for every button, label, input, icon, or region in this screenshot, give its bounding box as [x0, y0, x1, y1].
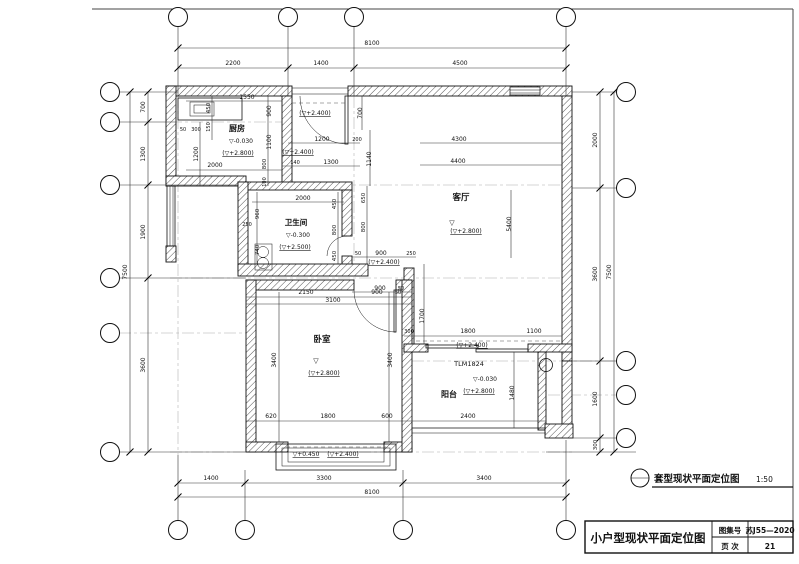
drawing-primitive: [617, 83, 636, 102]
wall-north-left: [166, 86, 292, 96]
wall-bedroom-south-left: [246, 442, 288, 452]
dim-label: ▽-0.300: [286, 232, 310, 239]
dim-label: 5400: [506, 216, 513, 231]
dim-label: 450: [332, 250, 338, 261]
dim-label: 2000: [592, 132, 599, 147]
dim-label: 900: [266, 105, 273, 117]
wall-east-lower: [562, 361, 572, 428]
drawing-primitive: [345, 96, 348, 144]
wall-east: [562, 96, 572, 361]
dim-label: (▽+2.800): [308, 370, 340, 377]
openings-and-fixtures: [167, 87, 560, 470]
dim-label: 1400: [313, 60, 328, 67]
wall-bath-north: [238, 182, 352, 190]
dim-label: 8100: [364, 489, 379, 496]
dim-label: 740: [255, 244, 261, 255]
drawing-primitive: [557, 8, 576, 27]
dim-label: 700: [140, 101, 147, 113]
dim-label: 1550: [239, 94, 254, 101]
drawing-title: 小户型现状平面定位图: [590, 531, 706, 545]
dim-label: 3400: [476, 475, 491, 482]
dim-label: (▽+2.800): [450, 228, 482, 235]
drawing-primitive: [557, 521, 576, 540]
dim-label: 1140: [366, 151, 373, 166]
dim-label: 1200: [314, 136, 329, 143]
window-west: [167, 186, 175, 246]
plan-caption: 套型现状平面定位图 1:50: [631, 469, 793, 487]
drawing-primitive: [167, 186, 175, 246]
dim-label: 800: [262, 158, 268, 169]
dim-label: 1600: [592, 391, 599, 406]
drawing-primitive: [101, 269, 120, 288]
wall-bath-east: [342, 190, 352, 236]
dim-label: 2400: [460, 413, 475, 420]
dim-label: 650: [361, 192, 367, 203]
dim-label: 7500: [606, 264, 613, 279]
dim-label: 700: [357, 107, 364, 119]
dim-label: 100: [262, 177, 268, 187]
drawing-primitive: [617, 429, 636, 448]
drawing-primitive: [354, 290, 396, 332]
dim-label: 300: [593, 439, 599, 450]
dim-label: 250: [406, 251, 416, 257]
dim-label: 1300: [140, 146, 147, 161]
dim-label: 3100: [325, 297, 340, 304]
dim-label: 2150: [298, 289, 313, 296]
dim-label: 900: [371, 289, 383, 296]
dim-label: 1900: [140, 224, 147, 239]
dim-label: 250: [242, 222, 252, 228]
room-label: 卫生间: [285, 217, 308, 227]
dim-label: 300: [191, 127, 201, 133]
window-north: [510, 87, 540, 95]
dim-label: 150: [206, 122, 212, 132]
dim-label: 1800: [320, 413, 335, 420]
page-value: 21: [765, 542, 775, 551]
dim-label: 300: [404, 329, 414, 335]
dim-label: 1480: [509, 385, 516, 400]
drawing-primitive: [169, 521, 188, 540]
drawing-primitive: [101, 443, 120, 462]
drawing-primitive: [101, 176, 120, 195]
dim-label: 8100: [364, 40, 379, 47]
dim-label: 200: [352, 137, 362, 143]
floor-plan-drawing: 8100220014004500140033003400810070013001…: [0, 0, 799, 564]
page-label: 页 次: [721, 541, 739, 551]
dim-label: 2000: [207, 162, 222, 169]
dim-label: 50: [395, 290, 401, 296]
dim-label: (▽+2.400): [299, 110, 331, 117]
dim-label: 50: [180, 127, 186, 133]
wall-kitchen-east: [282, 96, 292, 186]
drawing-primitive: [236, 521, 255, 540]
drawing-primitive: [101, 324, 120, 343]
dim-label: 2200: [225, 60, 240, 67]
room-label: ▽: [449, 219, 455, 227]
dim-label: 140: [290, 160, 300, 166]
dim-label: (▽+2.400): [282, 149, 314, 156]
dim-label: 800: [361, 221, 367, 232]
dim-label: 620: [265, 413, 277, 420]
dim-label: TLM1824: [453, 360, 484, 368]
dim-label: 4500: [452, 60, 467, 67]
room-label: 卧室: [313, 334, 331, 345]
dim-label: 1100: [526, 328, 541, 335]
dim-label: ▽-0.030: [473, 376, 497, 383]
drawing-primitive: [476, 349, 528, 352]
drawing-primitive: [617, 352, 636, 371]
wall-living-south-right: [528, 344, 572, 352]
dim-label: 450: [206, 102, 212, 113]
dim-label: (▽+2.400): [368, 259, 400, 266]
dim-label: 1400: [203, 475, 218, 482]
dim-label: 1100: [266, 134, 273, 149]
bedroom-door: [354, 290, 396, 332]
dim-label: 900: [375, 250, 387, 257]
dim-label: 1800: [460, 328, 475, 335]
wall-bedroom-east: [402, 280, 412, 452]
dim-label: 4400: [450, 158, 465, 165]
dim-label: 3600: [592, 266, 599, 281]
dim-label: (▽+2.800): [222, 150, 254, 157]
dim-label: 1200: [193, 146, 200, 161]
dim-label: ▽-0.030: [229, 138, 253, 145]
title-block: 小户型现状平面定位图 图集号 苏J55—2020 页 次 21: [585, 521, 795, 553]
room-label: 客厅: [451, 192, 470, 203]
dim-label: 4300: [451, 136, 466, 143]
dim-label: 3400: [271, 352, 278, 367]
drawing-primitive: [617, 386, 636, 405]
wall-living-south-left: [404, 344, 428, 352]
dim-label: 1300: [323, 159, 338, 166]
drawing-primitive: [169, 8, 188, 27]
drawing-primitive: [101, 113, 120, 132]
balcony-railing: [412, 428, 546, 433]
dim-label: 600: [381, 413, 393, 420]
room-label: 厨房: [229, 123, 245, 133]
caption-title: 套型现状平面定位图: [653, 473, 740, 485]
dim-label: 7500: [122, 264, 129, 279]
drawing-primitive: [510, 87, 540, 95]
dim-label: (▽+2.400): [456, 342, 488, 349]
dim-label: 960: [255, 208, 261, 219]
dim-label: ▽+0.450: [293, 451, 320, 458]
wall-west-stub: [166, 246, 176, 262]
atlas-no-value: 苏J55—2020: [745, 525, 794, 535]
drawing-primitive: [394, 290, 396, 332]
room-label: 阳台: [441, 389, 457, 399]
dim-label: 3300: [316, 475, 331, 482]
dim-label: (▽+2.400): [327, 451, 359, 458]
room-label: ▽: [313, 357, 319, 365]
dim-label: 3600: [140, 357, 147, 372]
wall-kitchen-south: [166, 176, 246, 186]
wall-bedroom-west: [246, 280, 256, 452]
dim-label: 50: [355, 251, 361, 257]
drawing-primitive: [101, 83, 120, 102]
dim-label: 1700: [419, 308, 426, 323]
drawing-primitive: [394, 521, 413, 540]
dim-label: 2000: [295, 195, 310, 202]
drawing-primitive: [279, 8, 298, 27]
atlas-no-label: 图集号: [719, 525, 742, 535]
wall-balcony-east: [538, 352, 546, 430]
drawing-primitive: [345, 8, 364, 27]
dim-label: (▽+2.800): [463, 388, 495, 395]
dim-label: (▽+2.500): [279, 244, 311, 251]
drawing-primitive: [617, 179, 636, 198]
dim-label: 800: [332, 224, 338, 235]
wall-west-upper: [166, 86, 176, 186]
wall-corner-block: [545, 424, 573, 438]
dim-label: 450: [332, 198, 338, 209]
caption-scale: 1:50: [756, 475, 773, 484]
dim-label: 3400: [387, 352, 394, 367]
